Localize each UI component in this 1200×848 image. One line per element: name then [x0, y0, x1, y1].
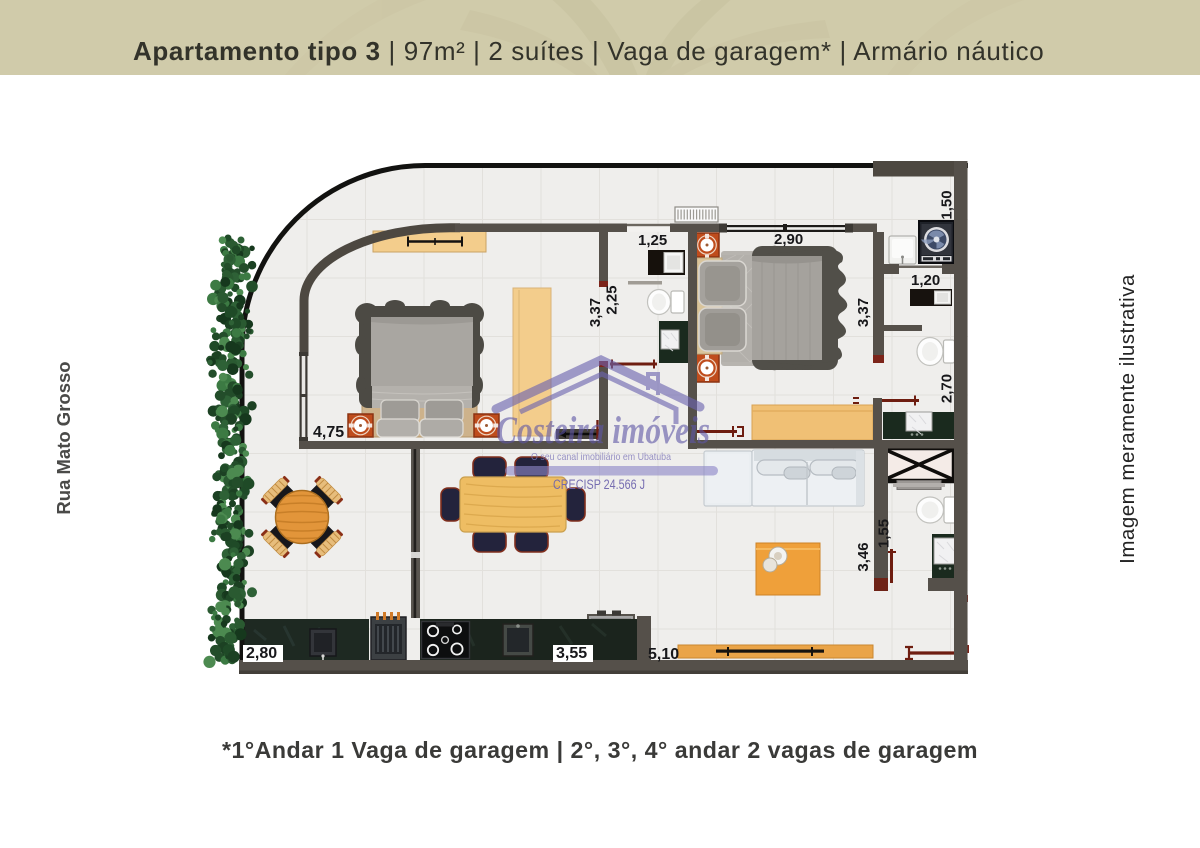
svg-text:3,46: 3,46: [855, 542, 872, 571]
svg-text:Costeira imóveis: Costeira imóveis: [496, 409, 710, 452]
svg-text:3,37: 3,37: [855, 298, 872, 327]
svg-text:CRECISP 24.566 J: CRECISP 24.566 J: [553, 477, 645, 492]
svg-text:3,55: 3,55: [556, 645, 587, 662]
svg-text:4,75: 4,75: [313, 424, 344, 441]
svg-text:Rua Mato Grosso: Rua Mato Grosso: [53, 361, 74, 514]
svg-text:1,20: 1,20: [911, 272, 940, 289]
svg-text:*1°Andar 1 Vaga de garagem | 2: *1°Andar 1 Vaga de garagem | 2°, 3°, 4° …: [222, 737, 978, 763]
svg-text:1,25: 1,25: [638, 232, 667, 249]
svg-text:Apartamento tipo 3 | 97m² | 2: Apartamento tipo 3 | 97m² | 2 suítes | V…: [133, 36, 1044, 66]
svg-text:2,70: 2,70: [939, 374, 956, 403]
svg-text:2,25: 2,25: [604, 285, 621, 314]
svg-text:5,10: 5,10: [648, 646, 679, 663]
svg-text:O seu canal imobiliário em Uba: O seu canal imobiliário em Ubatuba: [531, 451, 671, 463]
svg-text:1,55: 1,55: [876, 519, 893, 548]
svg-text:1,50: 1,50: [939, 190, 956, 219]
svg-text:2,90: 2,90: [774, 231, 803, 248]
svg-text:3,37: 3,37: [587, 298, 604, 327]
svg-text:Imagem meramente ilustrativa: Imagem meramente ilustrativa: [1116, 274, 1139, 564]
svg-text:2,80: 2,80: [246, 645, 277, 662]
